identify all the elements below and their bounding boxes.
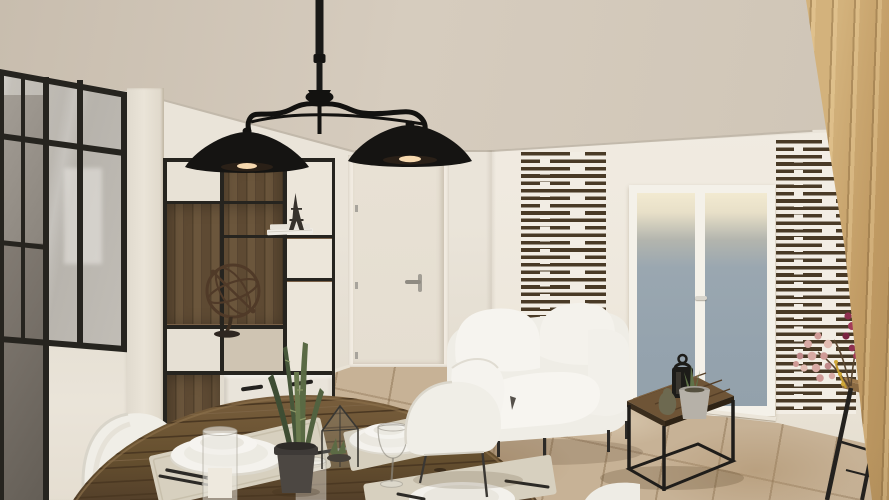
furniture-overlay bbox=[0, 0, 889, 500]
shelf-decor bbox=[206, 193, 313, 338]
dried-flowers-pink bbox=[793, 332, 835, 381]
pendant-lamp bbox=[185, 0, 472, 173]
lamp-glow bbox=[237, 163, 257, 169]
plant-pot bbox=[277, 452, 315, 493]
glass-candle-cylinder bbox=[203, 427, 237, 500]
sofa-leg bbox=[497, 441, 500, 457]
armillary-sphere bbox=[206, 263, 261, 338]
lamp-shade-right bbox=[348, 121, 472, 168]
sofa-leg bbox=[607, 430, 610, 452]
lamp-glow bbox=[399, 156, 421, 162]
dining-chair-front-partial bbox=[585, 483, 640, 500]
lamp-shade-left bbox=[185, 128, 309, 174]
interior-render-scene bbox=[0, 0, 889, 500]
